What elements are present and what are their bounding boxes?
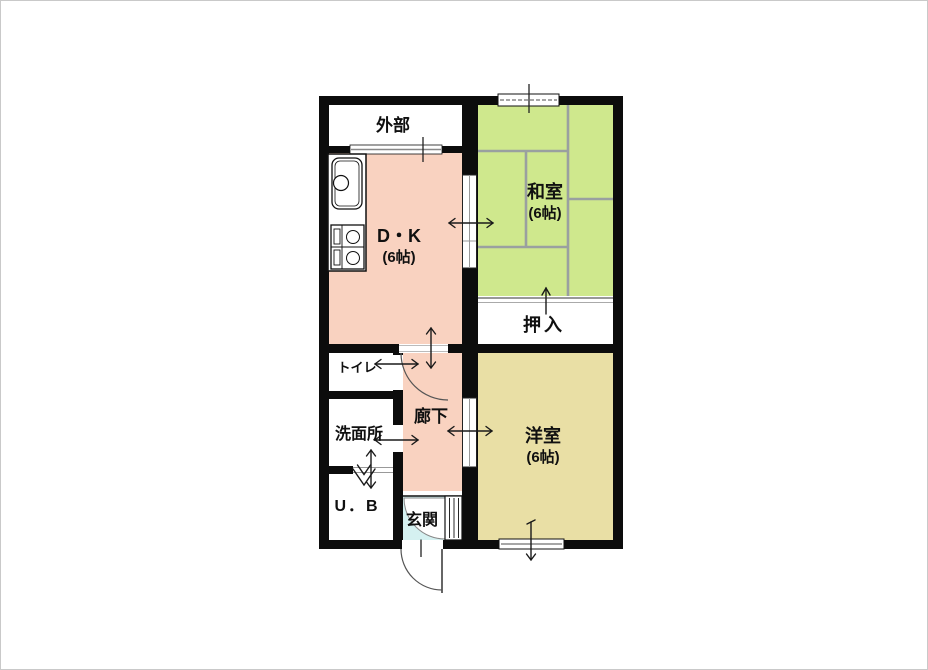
- opening-dk-rouka: [399, 344, 448, 353]
- room-oshiire-label: 押入: [523, 314, 565, 335]
- room-dk-label: D・K: [377, 226, 421, 246]
- room-unit-bath-label: U．B: [334, 498, 379, 515]
- kitchen-sink: [332, 158, 362, 209]
- room-senmenjo-label: 洗面所: [335, 424, 383, 443]
- room-genkan-label: 玄関: [406, 510, 438, 529]
- sliding-door-dk-washitsu: [463, 175, 477, 268]
- room-gaibu-label: 外部: [376, 115, 410, 135]
- shoe-cabinet: [445, 496, 462, 540]
- room-yoshitsu: [478, 353, 613, 540]
- kitchen-stove: [331, 225, 364, 269]
- room-yoshitsu-label: 洋室: [525, 425, 561, 446]
- room-yoshitsu-size: (6帖): [526, 448, 559, 466]
- doorway-senmenjo: [393, 425, 403, 452]
- room-rouka-label: 廊下: [414, 406, 448, 426]
- room-washitsu-label: 和室: [527, 181, 563, 202]
- floor-plan: 外部 D・K (6帖) 和室 (6帖) 押入 トイレ 洗面所 U．B 廊下 玄関…: [1, 1, 928, 670]
- floor-plan-page: 外部 D・K (6帖) 和室 (6帖) 押入 トイレ 洗面所 U．B 廊下 玄関…: [0, 0, 928, 670]
- window-gaibu-dk: [350, 145, 442, 154]
- room-washitsu-size: (6帖): [528, 204, 561, 222]
- doorway-entrance: [402, 540, 443, 549]
- sliding-door-rouka-yoshitsu: [463, 398, 477, 467]
- room-toilet-label: トイレ: [337, 360, 376, 375]
- genkan-step-edge: [403, 491, 462, 496]
- room-dk-size: (6帖): [382, 248, 415, 266]
